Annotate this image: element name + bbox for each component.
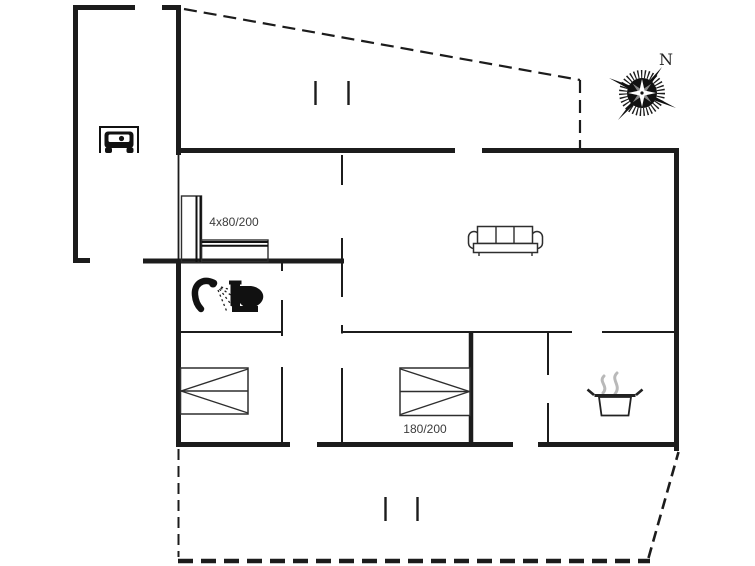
boundary-tick-marks-top (316, 81, 349, 105)
pot-body (599, 397, 631, 416)
plot-boundary (178, 9, 679, 561)
compass-center-dot (640, 91, 643, 94)
shower-head (209, 280, 217, 288)
wardrobe-horizontal-unit (202, 240, 269, 262)
floor-plan: 4x80/200 180/200 (0, 0, 755, 566)
compass-rose-icon (609, 67, 676, 120)
car-wheel-left (105, 148, 112, 154)
bed-size-label: 180/200 (403, 422, 447, 436)
toilet-bowl (240, 286, 263, 308)
compass-north-label: N (659, 50, 673, 69)
floor-plan-drawing: 4x80/200 180/200 (0, 0, 755, 566)
toilet-base (232, 306, 258, 312)
wardrobe-vertical-doors (197, 196, 201, 262)
toilet-tank-lid (229, 281, 242, 285)
car-icon (100, 127, 138, 153)
steam-icon (602, 373, 617, 394)
wardrobe-icon (182, 196, 269, 262)
boundary-top-dashed-line (184, 9, 580, 149)
wardrobe-horizontal-doors (202, 242, 269, 246)
sofa-icon (469, 227, 543, 257)
boundary-tick-marks-bottom (386, 497, 418, 521)
toilet-icon (229, 281, 263, 313)
double-bed-icon-right (400, 368, 470, 416)
car-wheel-right (127, 148, 134, 154)
wardrobe-size-label: 4x80/200 (209, 215, 259, 229)
boundary-diagonal-dashed-line (649, 452, 679, 558)
double-bed-icon-left (181, 368, 249, 414)
wardrobe-vertical-unit (182, 196, 202, 262)
toilet-tank (231, 282, 241, 306)
car-steering-wheel (119, 136, 124, 141)
sofa-seat (474, 244, 538, 253)
cooking-pot-icon (588, 373, 643, 416)
sofa-back (478, 227, 533, 244)
